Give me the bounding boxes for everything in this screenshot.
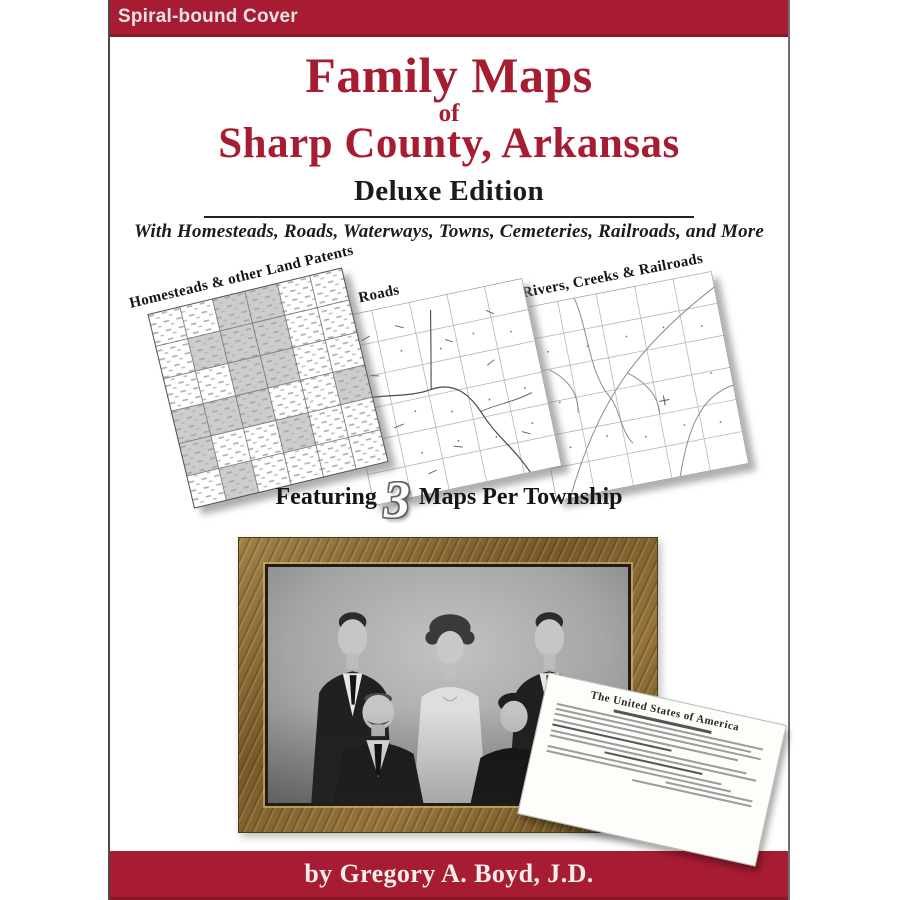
patent-text-line bbox=[546, 750, 731, 793]
edition-label: Deluxe Edition bbox=[110, 175, 788, 208]
title-county: Sharp County, Arkansas bbox=[110, 122, 788, 165]
homesteads-map-preview: Homesteads & other Land Patents bbox=[147, 267, 388, 508]
author-bar: by Gregory A. Boyd, J.D. bbox=[110, 851, 788, 900]
roads-map-label: Roads bbox=[357, 282, 401, 307]
binding-type-label: Spiral-bound Cover bbox=[110, 6, 298, 28]
featuring-prefix: Featuring bbox=[276, 484, 377, 510]
featuring-line: Featuring3Maps Per Township bbox=[110, 484, 788, 511]
title-main: Family Maps bbox=[110, 50, 788, 101]
book-cover-page: Spiral-bound Cover Family Maps of Sharp … bbox=[108, 0, 790, 900]
book-cover: Spiral-bound Cover Family Maps of Sharp … bbox=[0, 0, 900, 900]
title-divider bbox=[204, 216, 694, 218]
title-block: Family Maps of Sharp County, Arkansas De… bbox=[110, 50, 788, 243]
patent-signature-line bbox=[666, 781, 753, 802]
author-byline: by Gregory A. Boyd, J.D. bbox=[304, 859, 593, 889]
land-patent-document: The United States of America bbox=[517, 672, 787, 866]
binding-type-banner: Spiral-bound Cover bbox=[110, 0, 788, 37]
homesteads-map-graphic bbox=[147, 267, 388, 508]
featuring-suffix: Maps Per Township bbox=[419, 484, 623, 510]
tagline: With Homesteads, Roads, Waterways, Towns… bbox=[110, 221, 788, 243]
